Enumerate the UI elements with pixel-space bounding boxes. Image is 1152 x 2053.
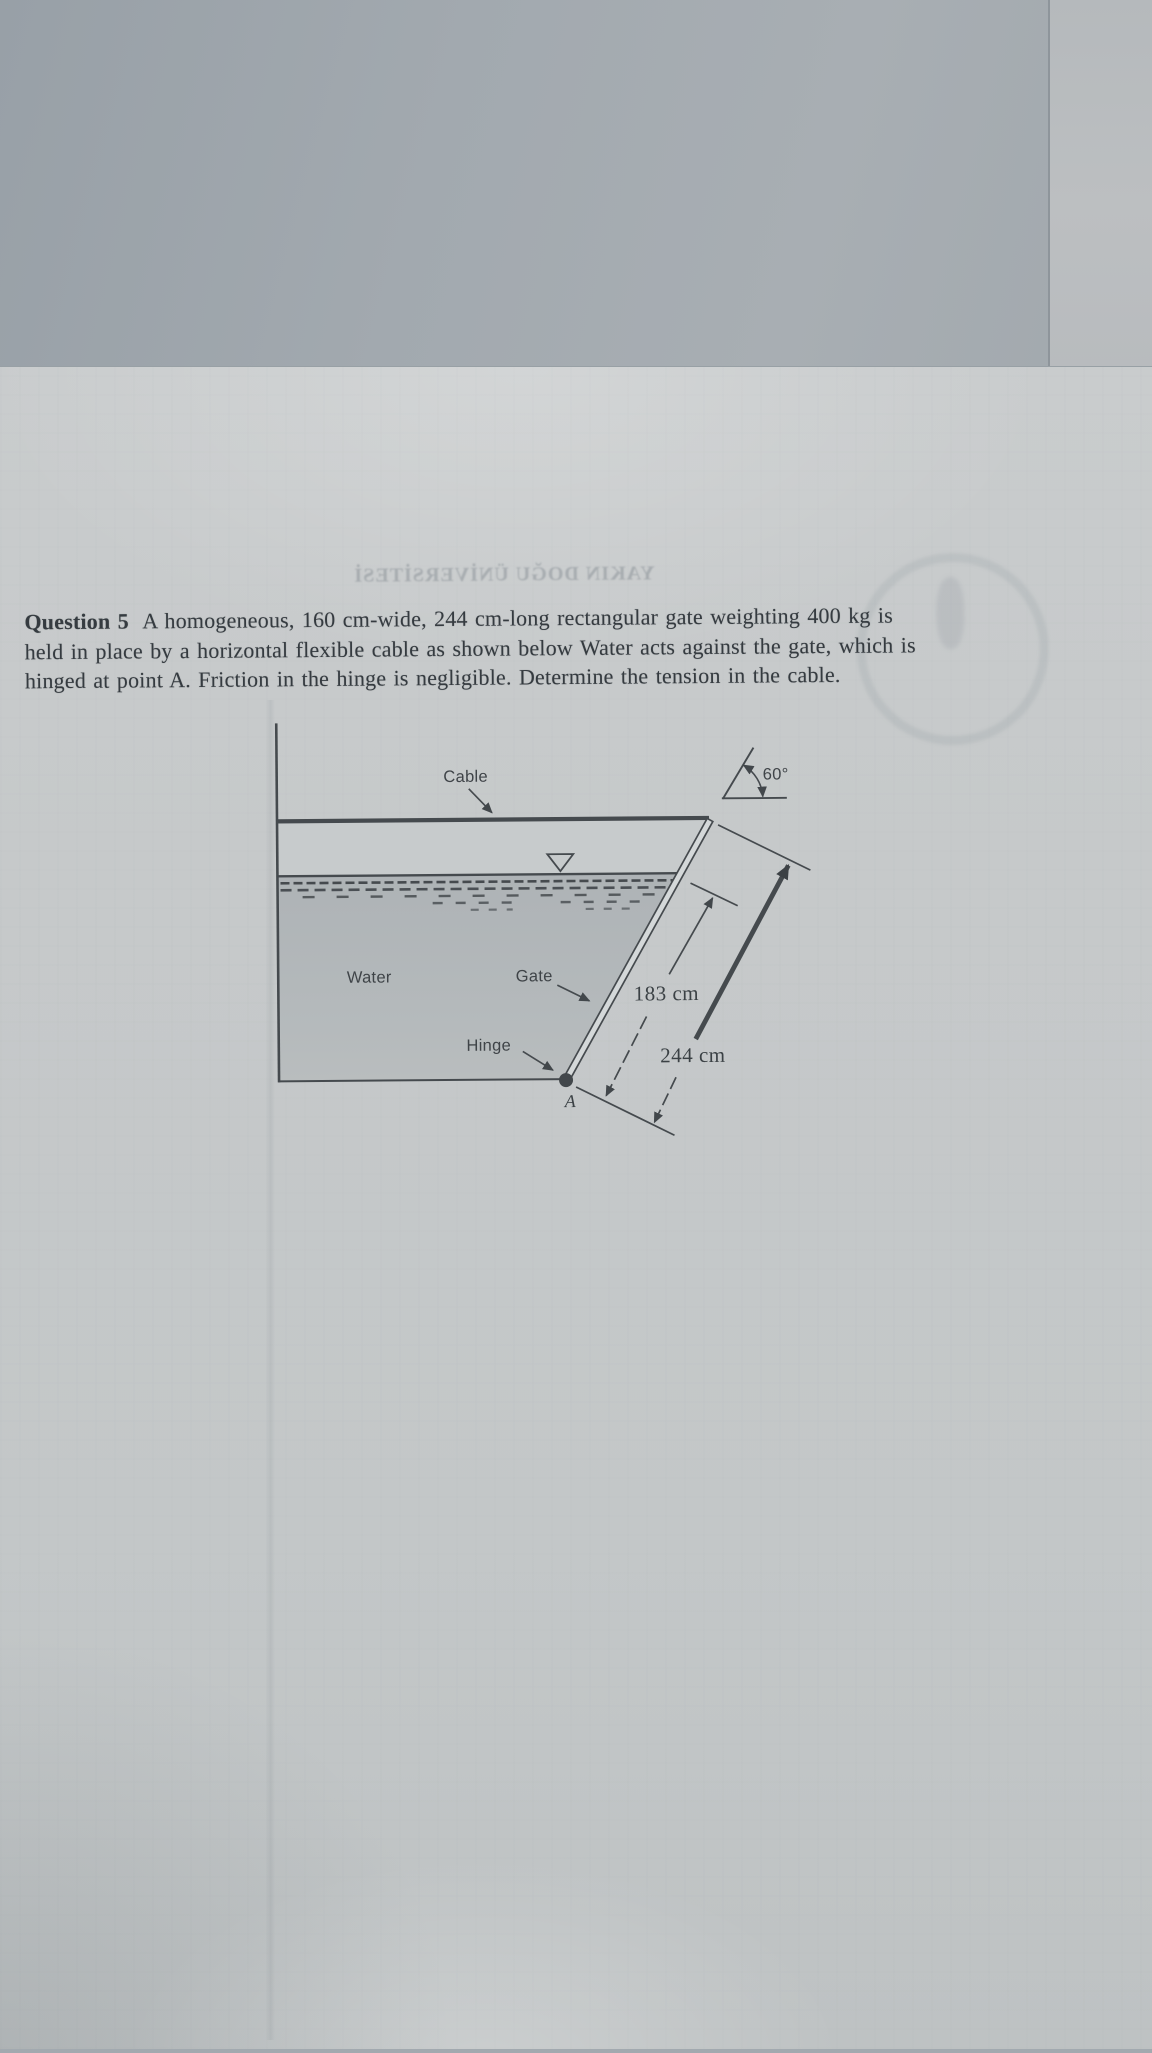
tank-left-wall xyxy=(276,723,279,1082)
point-a-label: A xyxy=(564,1091,577,1111)
angle-value-label: 60° xyxy=(763,765,789,783)
extension-line-waterline xyxy=(691,883,738,906)
gate-label: Gate xyxy=(516,967,553,985)
photographed-exam-sheet: { "document": { "question": { "label": "… xyxy=(0,0,1152,2048)
angle-slant-line xyxy=(722,748,753,799)
hinge-label: Hinge xyxy=(466,1037,511,1055)
hinge-dot xyxy=(559,1073,573,1087)
page-content: YAKIN DOĞU ÜNİVERSİTESİ Question 5 A hom… xyxy=(0,0,1152,2052)
cable-label: Cable xyxy=(443,768,488,786)
dim-244-label: 244 cm xyxy=(660,1043,726,1068)
dim-244-lower-segment xyxy=(654,1077,676,1122)
water-label: Water xyxy=(347,968,392,986)
dim-183-label: 183 cm xyxy=(634,981,700,1006)
tank-air-space xyxy=(278,820,707,877)
extension-line-top xyxy=(718,824,810,871)
dim-183-upper-segment xyxy=(669,898,714,974)
angle-base-line xyxy=(722,798,787,799)
cable-leader-arrow xyxy=(469,789,492,813)
angle-arc xyxy=(744,765,763,797)
dim-183-lower-segment xyxy=(606,1016,648,1095)
gate-hydrostatics-diagram: Cable Water Gate Hinge A 60° 183 cm 244 … xyxy=(0,0,1152,2052)
